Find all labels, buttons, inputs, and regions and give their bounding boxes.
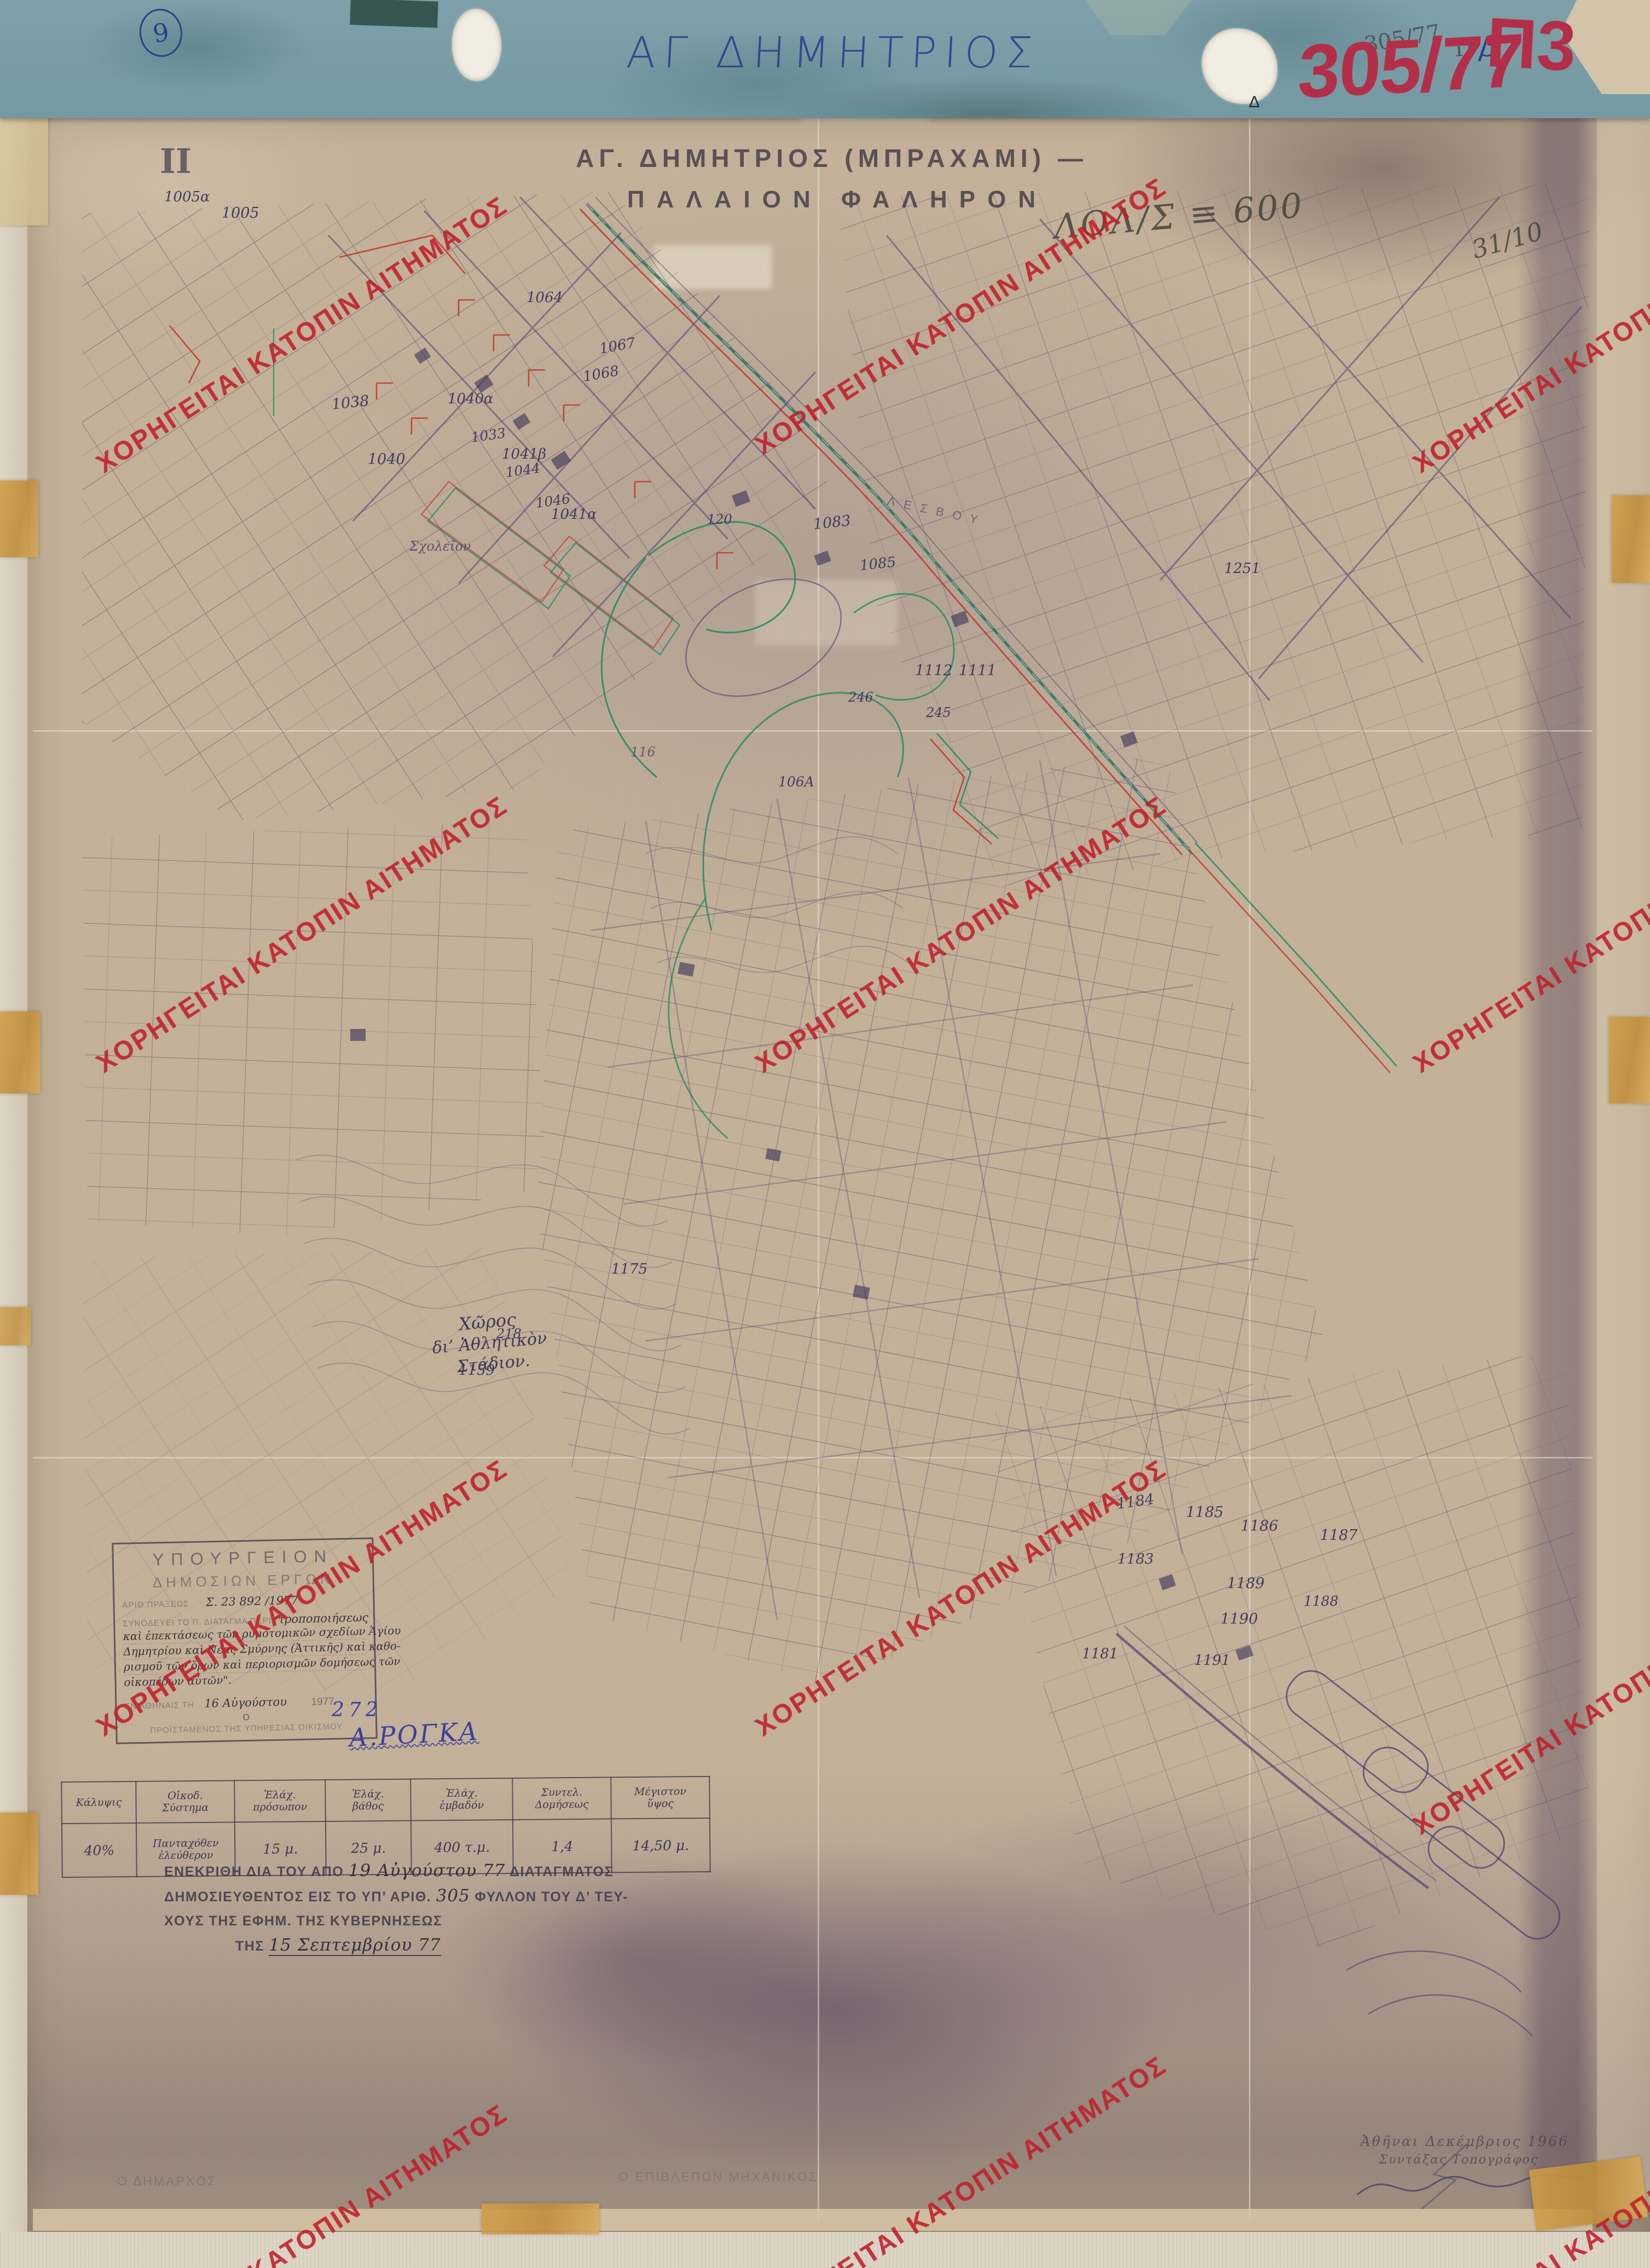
- parcel-number: 1183: [1118, 1551, 1154, 1567]
- tape-piece: [482, 2203, 599, 2234]
- footer-mayor-label: Ο ΔΗΜΑΡΧΟΣ: [117, 2174, 217, 2189]
- handwritten-area-title: ΑΓ ΔΗΜΗΤΡΙΟΣ: [626, 28, 1042, 78]
- col-header: Συντελ. Δομήσεως: [512, 1777, 611, 1820]
- parcel-number: 1251: [1224, 560, 1260, 577]
- parcel-number: 1005α: [164, 189, 210, 205]
- parcel-number: 1189: [1227, 1575, 1265, 1592]
- approval-print: ΔΙΑΤΑΓΜΑΤΟΣ: [510, 1864, 613, 1879]
- approval-print: ΔΗΜΟΣΙΕΥΘΕΝΤΟΣ ΕΙΣ ΤΟ ΥΠ’ ΑΡΙΘ.: [164, 1889, 431, 1905]
- approval-line4: ΤΗΣ 15 Σεπτεμβρίου 77: [235, 1933, 628, 1958]
- parcel-number: 116: [630, 744, 656, 760]
- bottom-edge-tape: [33, 2209, 1593, 2231]
- parcel-number: 1064: [526, 290, 563, 306]
- sheet-numeral: II: [160, 141, 192, 181]
- stamp-year: 1977: [311, 1696, 334, 1708]
- parcel-number: 246: [848, 690, 873, 705]
- parcel-number: 1186: [1241, 1518, 1278, 1535]
- approval-handwritten-gazette-date: 15 Σεπτεμβρίου 77: [269, 1935, 441, 1956]
- parcel-number: 1112: [915, 662, 953, 679]
- approval-line2: ΔΗΜΟΣΙΕΥΘΕΝΤΟΣ ΕΙΣ ΤΟ ΥΠ’ ΑΡΙΘ. 305 ΦΥΛΛ…: [164, 1884, 628, 1909]
- col-header: Οἰκοδ. Σύστημα: [136, 1780, 235, 1823]
- header-strip: 9 ΑΓ ΔΗΜΗΤΡΙΟΣ 305/77 Π β 305/77 Δ: [0, 0, 1650, 118]
- parcel-number: 106Α: [778, 774, 814, 790]
- footer-engineer-label: Ο ΕΠΙΒΛΕΠΩΝ ΜΗΧΑΝΙΚΟΣ: [618, 2169, 818, 2184]
- footer-date: Ἀθῆναι Δεκέμβριος 1966: [1360, 2133, 1569, 2149]
- tape-piece: [0, 1813, 38, 1895]
- parcel-number: 1111: [959, 662, 997, 679]
- circled-page-number: 9: [136, 6, 185, 60]
- approval-block: ΕΝΕΚΡΙΘΗ ΔΙΑ ΤΟΥ ΑΠΟ 19 Αὐγούστου 77 ΔΙΑ…: [164, 1859, 628, 1958]
- parcel-number: 1187: [1320, 1527, 1358, 1544]
- approval-print: ΕΝΕΚΡΙΘΗ ΔΙΑ ΤΟΥ ΑΠΟ: [164, 1864, 344, 1879]
- parcel-number: 1041α: [551, 506, 597, 523]
- glassine-tape-fragment: [1085, 0, 1191, 35]
- parcel-number: 1190: [1220, 1611, 1258, 1628]
- parcel-number: 1181: [1082, 1646, 1118, 1662]
- parcel-number: 1188: [1304, 1593, 1339, 1609]
- parcel-number: 1041β: [502, 446, 546, 462]
- zoning-table-header-row: Κάλυψις Οἰκοδ. Σύστημα Ἐλάχ. πρόσωπον Ἐλ…: [61, 1777, 710, 1824]
- tape-piece: [1612, 495, 1650, 583]
- tape-piece: [0, 116, 48, 225]
- punch-hole: [452, 9, 501, 81]
- punch-hole: [1202, 28, 1277, 104]
- col-header: Ἐλάχ. βάθος: [325, 1779, 411, 1821]
- approval-handwritten-date: 19 Αὐγούστου 77: [349, 1861, 506, 1881]
- map-title-line2: ΠΑΛΑΙΟΝ ΦΑΛΗΡΟΝ: [613, 186, 1062, 213]
- parcel-number: 1083: [812, 512, 852, 533]
- col-header: Ἐλάχ. πρόσωπον: [234, 1780, 326, 1822]
- approval-line1: ΕΝΕΚΡΙΘΗ ΔΙΑ ΤΟΥ ΑΠΟ 19 Αὐγούστου 77 ΔΙΑ…: [164, 1859, 628, 1884]
- col-header: Ἐλάχ. ἐμβαδόν: [410, 1778, 513, 1821]
- approval-line3: ΧΟΥΣ ΤΗΣ ΕΦΗΜ. ΤΗΣ ΚΥΒΕΡΝΗΣΕΩΣ: [164, 1909, 628, 1933]
- tape-piece: [0, 1307, 31, 1345]
- approval-print: ΤΗΣ: [235, 1939, 264, 1954]
- parcel-number: 1005: [222, 205, 259, 222]
- red-code-label: Π3: [1484, 2, 1578, 87]
- footer-drafter-label: Συντάξας Τοπογράφος: [1379, 2153, 1538, 2167]
- dark-tape-fragment: [350, 0, 438, 28]
- parcel-number: 1191: [1194, 1652, 1230, 1669]
- table-cell: 40%: [62, 1823, 137, 1877]
- school-label: Σχολεῖον: [409, 539, 471, 554]
- parcel-number: 245: [925, 705, 951, 720]
- col-header: Κάλυψις: [61, 1781, 136, 1824]
- approval-handwritten-number: 305: [436, 1886, 470, 1906]
- tape-piece: [1609, 1017, 1650, 1103]
- parcel-number: 1040α: [448, 391, 494, 407]
- scanned-town-plan-sheet: 1005α 1005 1033 1044 1046 1064 1067 1068…: [0, 0, 1650, 2268]
- approval-print: ΦΥΛΛΟΝ ΤΟΥ Δ’ ΤΕΥ-: [474, 1889, 628, 1905]
- parcel-number: 120: [707, 512, 732, 527]
- tape-piece: [0, 1011, 40, 1093]
- parcel-number: 1175: [611, 1261, 647, 1277]
- col-header: Μέγιστον ὕψος: [611, 1777, 710, 1819]
- map-title-line1: ΑΓ. ΔΗΜΗΤΡΙΟΣ (ΜΠΡΑΧΑΜΙ) —: [547, 143, 1116, 173]
- parcel-number: 1185: [1186, 1504, 1224, 1521]
- tape-piece: [0, 481, 38, 557]
- stamp-number-handwritten: 272: [332, 1699, 383, 1721]
- stamp-date-hw: 16 Αὐγούστου: [204, 1695, 287, 1710]
- stamp-act-label: ΑΡΙΘ ΠΡΑΞΕΩΣ: [122, 1599, 189, 1610]
- parcel-number: 1040: [368, 451, 406, 468]
- hole-triangle-mark: Δ: [1249, 93, 1260, 112]
